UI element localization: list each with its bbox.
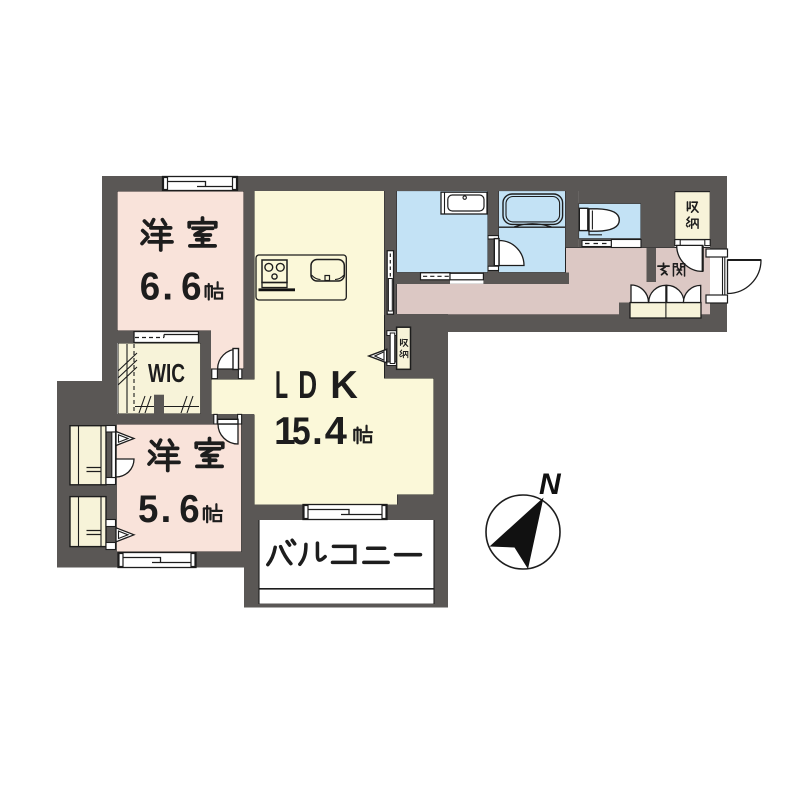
svg-text:D: D (298, 364, 317, 407)
svg-text:WIC: WIC (148, 358, 185, 388)
svg-text:6: 6 (140, 265, 160, 308)
svg-text:.: . (161, 488, 172, 531)
svg-text:5: 5 (292, 409, 311, 453)
svg-text:L: L (275, 363, 288, 406)
svg-text:N: N (539, 468, 562, 501)
svg-text:5: 5 (138, 488, 158, 531)
svg-text:.: . (162, 266, 173, 309)
svg-text:.: . (312, 410, 323, 453)
svg-text:K: K (330, 364, 358, 407)
svg-text:4: 4 (325, 409, 347, 453)
svg-text:6: 6 (179, 488, 199, 531)
svg-text:6: 6 (181, 265, 201, 308)
